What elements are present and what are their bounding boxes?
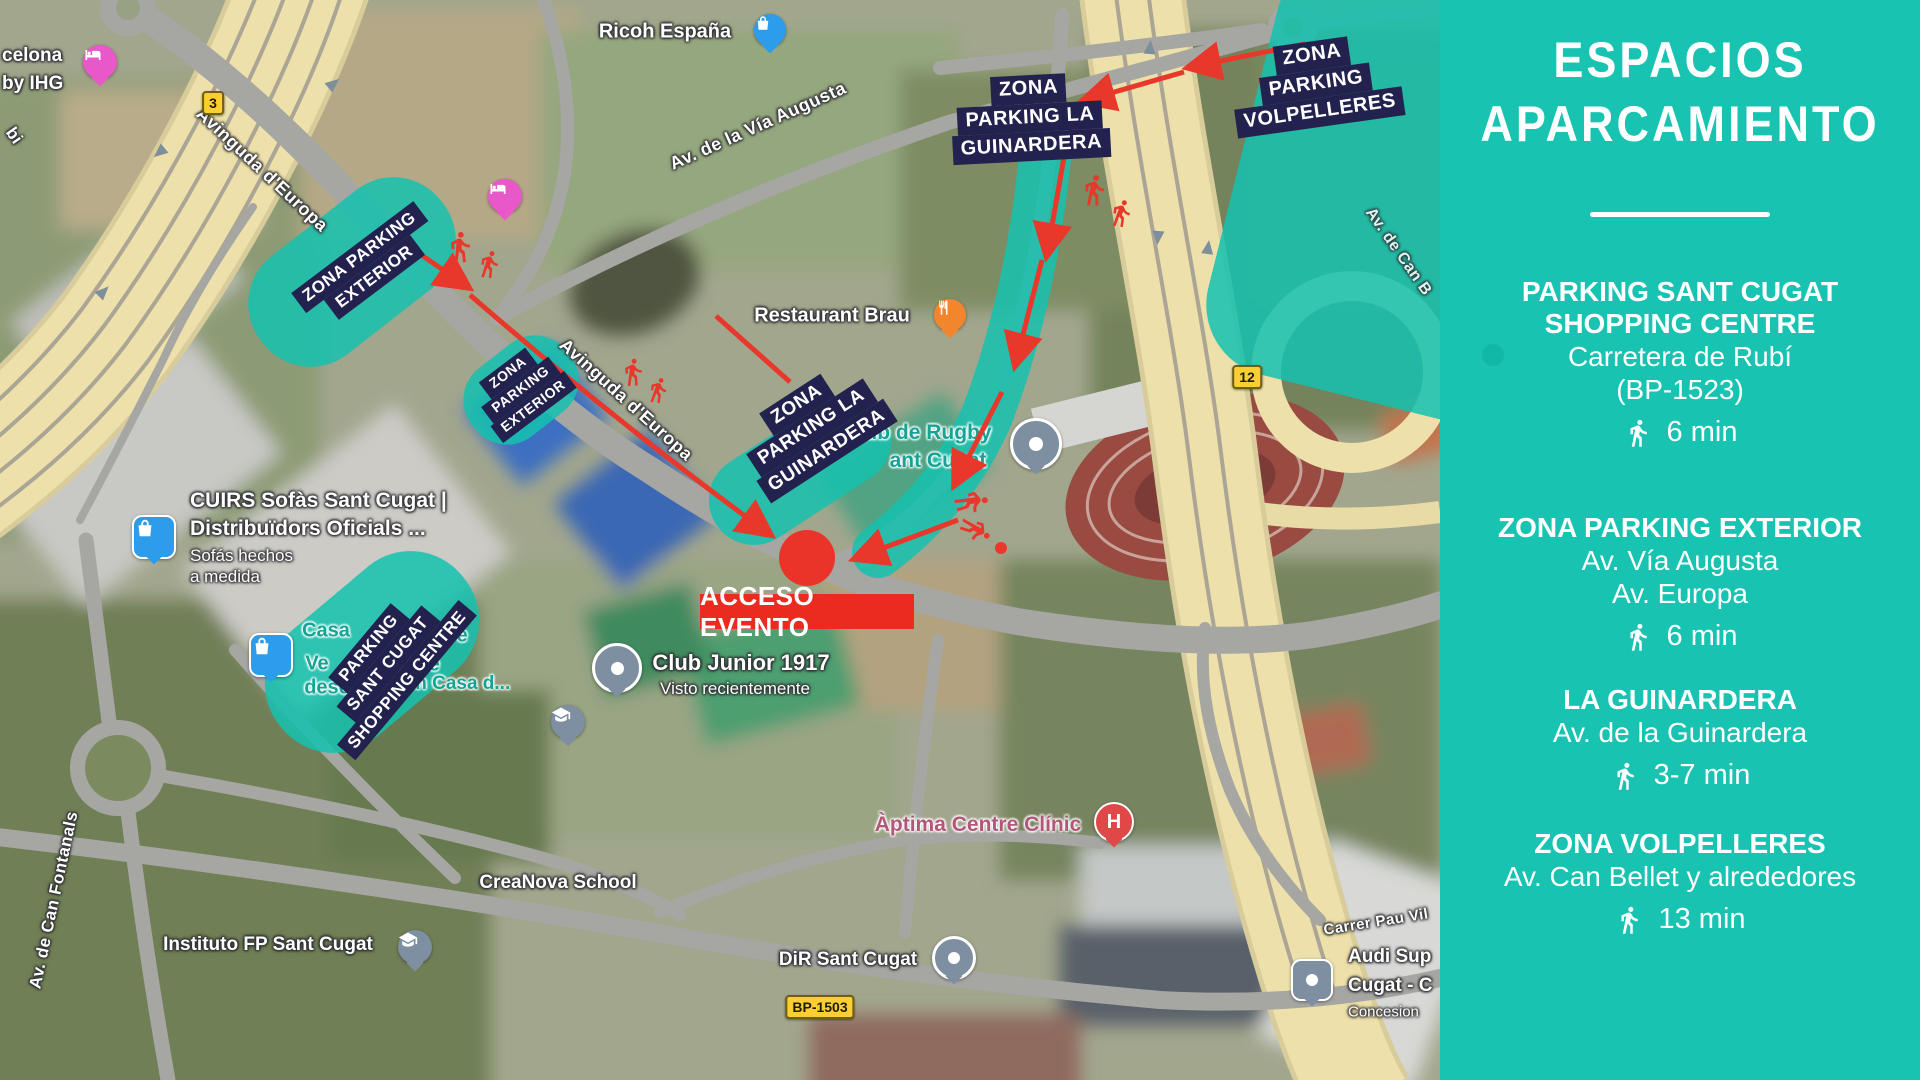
entry-name-line: ZONA PARKING EXTERIOR [1450, 512, 1910, 544]
title-divider [1590, 212, 1770, 217]
ricoh-pin[interactable] [754, 14, 786, 46]
casa-bag-pin-2[interactable] [249, 633, 293, 677]
route-badge-bp1503: BP-1503 [785, 995, 854, 1019]
acceso-evento-label: ACCESO EVENTO [700, 594, 914, 629]
audi-pin[interactable] [1291, 959, 1333, 1001]
entry-name-line: ZONA VOLPELLERES [1450, 828, 1910, 860]
dir-pin[interactable] [932, 936, 976, 980]
poi-club-junior[interactable]: Club Junior 1917 [652, 650, 829, 676]
walk-time: 13 min [1658, 903, 1745, 936]
poi-cuirs-sub-2: a medida [190, 567, 260, 587]
fork-knife-icon [934, 299, 952, 317]
parking-entry-exterior: ZONA PARKING EXTERIOR Av. Vía Augusta Av… [1450, 512, 1910, 653]
walk-time-row: 6 min [1450, 620, 1910, 653]
poi-hotel-partial-1[interactable]: celona [2, 45, 62, 67]
entry-address-line: Av. Can Bellet y alrededores [1450, 860, 1910, 893]
parking-entry-guinardera: LA GUINARDERA Av. de la Guinardera 3-7 m… [1450, 684, 1910, 792]
walking-person-icon [1623, 418, 1653, 448]
entry-address-line: Carretera de Rubí [1450, 340, 1910, 373]
bed-icon [83, 45, 103, 65]
poi-ricoh[interactable]: Ricoh España [599, 21, 731, 44]
walk-time-row: 6 min [1450, 416, 1910, 449]
poi-club-junior-sub: Visto recientemente [660, 679, 810, 699]
walking-person-icon [1610, 761, 1640, 791]
entry-name-line: SHOPPING CENTRE [1450, 308, 1910, 340]
walk-time-row: 3-7 min [1450, 759, 1910, 792]
walk-time: 6 min [1667, 620, 1738, 653]
creanova-pin[interactable] [551, 705, 585, 739]
cuirs-bag-pin-1[interactable] [132, 515, 176, 559]
poi-rugby-2[interactable]: ant Cugat [890, 449, 987, 473]
poi-cuirs-sub-1: Sofás hechos [190, 546, 293, 566]
hotel-pin-2[interactable] [488, 179, 522, 213]
poi-dir[interactable]: DiR Sant Cugat [779, 949, 917, 971]
walking-person-icon [1614, 905, 1644, 935]
aptima-hospital-pin[interactable]: H [1094, 802, 1134, 842]
poi-aptima[interactable]: Àptima Centre Clínic [875, 813, 1082, 837]
poi-restaurant-brau[interactable]: Restaurant Brau [754, 305, 910, 328]
poi-casa-frag-3: Ve [305, 653, 328, 676]
shopping-bag-icon [754, 14, 772, 32]
graduation-cap-icon [551, 705, 571, 725]
poi-cuirs-1[interactable]: CUIRS Sofàs Sant Cugat | [190, 489, 447, 513]
satellite-map[interactable]: Avinguda d'Europa Avinguda d'Europa Av. … [0, 0, 1440, 1080]
bed-icon [488, 179, 508, 199]
poi-hotel-partial-2[interactable]: by IHG [2, 73, 63, 95]
instituto-pin[interactable] [398, 930, 432, 964]
walk-time: 6 min [1667, 416, 1738, 449]
poi-instituto[interactable]: Instituto FP Sant Cugat [163, 934, 373, 956]
zone-label-guinardera-top: ZONA PARKING LA GUINARDERA [949, 71, 1111, 165]
parking-entry-volpelleres: ZONA VOLPELLERES Av. Can Bellet y alrede… [1450, 828, 1910, 936]
walking-person-icon [1623, 622, 1653, 652]
rugby-club-pin[interactable] [1010, 418, 1062, 470]
entry-address-line: Av. Europa [1450, 577, 1910, 610]
entry-name-line: PARKING SANT CUGAT [1450, 276, 1910, 308]
shopping-bag-icon [134, 517, 156, 539]
route-badge-12: 12 [1232, 365, 1262, 389]
sidebar-title-line2: APARCAMIENTO [1440, 95, 1920, 153]
walk-time-row: 13 min [1450, 903, 1910, 936]
poi-creanova[interactable]: CreaNova School [479, 872, 636, 894]
club-junior-pin[interactable] [592, 643, 642, 693]
hotel-pin-1[interactable] [83, 45, 117, 79]
sidebar-espacios-aparcamiento: ESPACIOS APARCAMIENTO PARKING SANT CUGAT… [1440, 0, 1920, 1080]
entry-address-line: (BP-1523) [1450, 373, 1910, 406]
graduation-cap-icon [398, 930, 418, 950]
poi-cuirs-2[interactable]: Distribuïdors Oficials ... [190, 517, 426, 541]
shopping-bag-icon [251, 635, 273, 657]
poi-audi-1[interactable]: Audi Sup [1348, 946, 1431, 968]
entry-name-line: LA GUINARDERA [1450, 684, 1910, 716]
walk-time: 3-7 min [1654, 759, 1751, 792]
route-badge-3: 3 [202, 91, 224, 115]
poi-casa-frag-1[interactable]: Casa [302, 620, 350, 643]
entry-address-line: Av. Vía Augusta [1450, 544, 1910, 577]
parking-entry-shopping-centre: PARKING SANT CUGAT SHOPPING CENTRE Carre… [1450, 276, 1910, 449]
poi-audi-2[interactable]: Cugat - C [1348, 975, 1432, 997]
sidebar-title-line1: ESPACIOS [1440, 31, 1920, 89]
entry-address-line: Av. de la Guinardera [1450, 716, 1910, 749]
parking-map-flyer: Avinguda d'Europa Avinguda d'Europa Av. … [0, 0, 1920, 1080]
restaurant-pin[interactable] [934, 299, 966, 331]
poi-audi-3: Concesion [1348, 1004, 1419, 1021]
